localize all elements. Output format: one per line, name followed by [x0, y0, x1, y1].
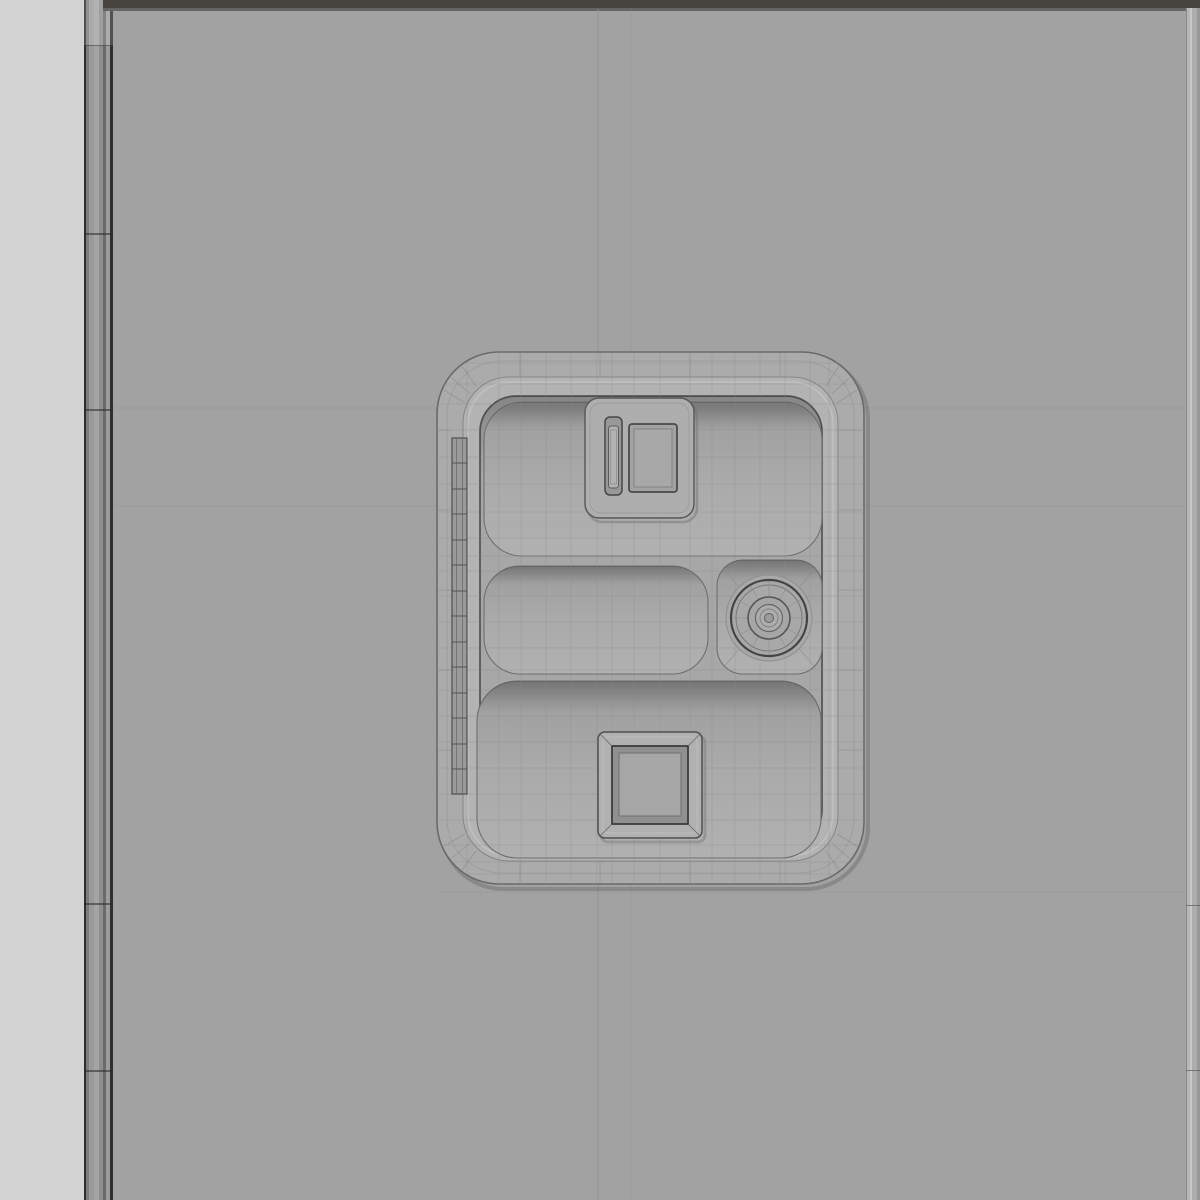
screenshot-stage [0, 0, 1200, 1200]
square-push-button [598, 732, 705, 842]
wireframe-overlay [0, 0, 1200, 1200]
hinge-strip [452, 438, 467, 794]
slider-handle [609, 426, 619, 488]
console-model[interactable] [437, 352, 868, 889]
middle-pocket-shade [484, 566, 708, 674]
slider-switch-housing [585, 398, 697, 522]
switch-square-face [634, 429, 672, 487]
knob-center [765, 614, 774, 623]
button-face [619, 753, 681, 816]
